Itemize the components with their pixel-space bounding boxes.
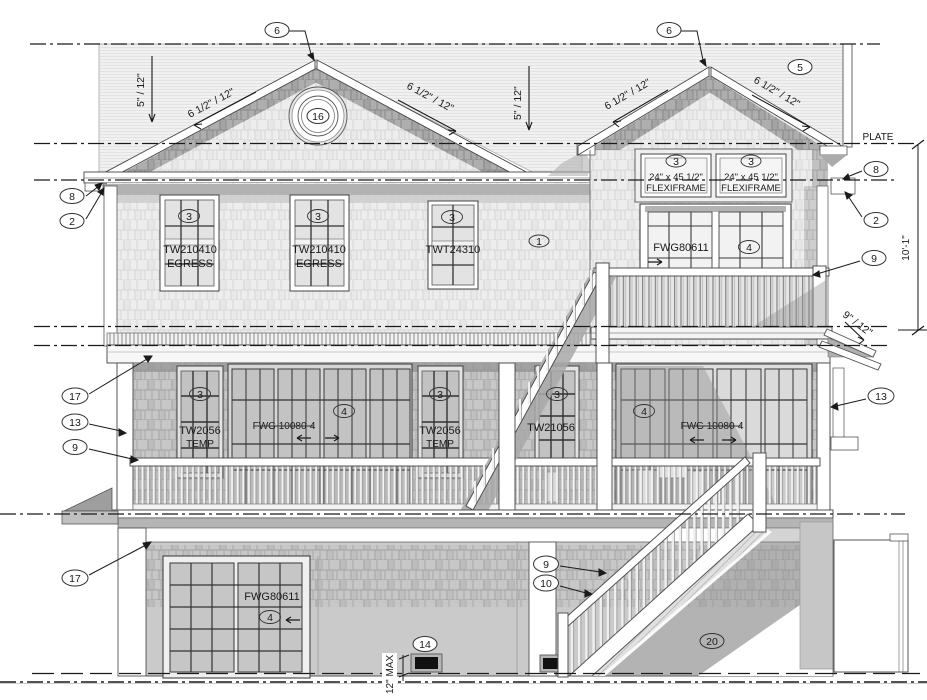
svg-text:TEMP: TEMP <box>426 439 454 450</box>
svg-text:12" MAX: 12" MAX <box>385 655 396 694</box>
svg-text:5" / 12": 5" / 12" <box>135 73 147 107</box>
svg-text:6: 6 <box>666 25 672 37</box>
svg-text:3: 3 <box>315 211 321 223</box>
svg-text:4: 4 <box>641 406 647 418</box>
svg-text:13: 13 <box>69 417 81 429</box>
svg-text:FWG80611: FWG80611 <box>653 242 708 254</box>
svg-text:3: 3 <box>748 156 754 168</box>
svg-text:EGRESS: EGRESS <box>296 258 342 270</box>
svg-text:EGRESS: EGRESS <box>167 258 213 270</box>
svg-text:3: 3 <box>186 211 192 223</box>
svg-text:3: 3 <box>673 156 679 168</box>
svg-text:TWT24310: TWT24310 <box>426 244 480 256</box>
svg-text:4: 4 <box>746 242 752 254</box>
svg-text:17: 17 <box>69 391 81 403</box>
svg-text:3: 3 <box>437 389 443 401</box>
svg-text:20: 20 <box>706 636 718 648</box>
svg-text:10'-1": 10'-1" <box>901 235 912 261</box>
svg-text:3: 3 <box>197 389 203 401</box>
svg-text:2: 2 <box>69 216 75 228</box>
svg-text:FWG80611: FWG80611 <box>244 591 299 603</box>
svg-text:8: 8 <box>873 164 879 176</box>
svg-text:FLEXIFRAME: FLEXIFRAME <box>646 183 706 194</box>
svg-text:17: 17 <box>69 573 81 585</box>
svg-text:9: 9 <box>72 442 78 454</box>
svg-text:FWG 10080-4: FWG 10080-4 <box>681 421 744 432</box>
svg-text:24" x 45 1/2": 24" x 45 1/2" <box>724 172 778 183</box>
svg-text:4: 4 <box>341 406 347 418</box>
svg-text:TW21056: TW21056 <box>527 422 575 434</box>
svg-text:1: 1 <box>536 236 542 248</box>
svg-text:2: 2 <box>873 215 879 227</box>
svg-text:TEMP: TEMP <box>186 439 214 450</box>
svg-text:TW210410: TW210410 <box>292 244 346 256</box>
svg-text:PLATE: PLATE <box>863 132 894 143</box>
svg-text:3: 3 <box>449 212 455 224</box>
svg-text:TW2056: TW2056 <box>179 425 221 437</box>
svg-text:9: 9 <box>543 559 549 571</box>
svg-text:FLEXIFRAME: FLEXIFRAME <box>721 183 781 194</box>
svg-text:4: 4 <box>267 612 273 624</box>
svg-text:3: 3 <box>554 389 560 401</box>
svg-text:5" / 12": 5" / 12" <box>512 86 524 120</box>
svg-text:6: 6 <box>274 25 280 37</box>
svg-text:24" x 45 1/2": 24" x 45 1/2" <box>649 172 703 183</box>
svg-text:TW210410: TW210410 <box>163 244 217 256</box>
svg-text:10: 10 <box>540 578 552 590</box>
svg-text:TW2056: TW2056 <box>419 425 461 437</box>
svg-text:8: 8 <box>69 191 75 203</box>
svg-text:FWG 10080-4: FWG 10080-4 <box>253 421 316 432</box>
svg-text:14: 14 <box>419 639 431 651</box>
svg-text:16: 16 <box>312 111 324 123</box>
svg-text:5: 5 <box>797 62 803 74</box>
svg-text:13: 13 <box>875 391 887 403</box>
svg-text:9: 9 <box>871 253 877 265</box>
